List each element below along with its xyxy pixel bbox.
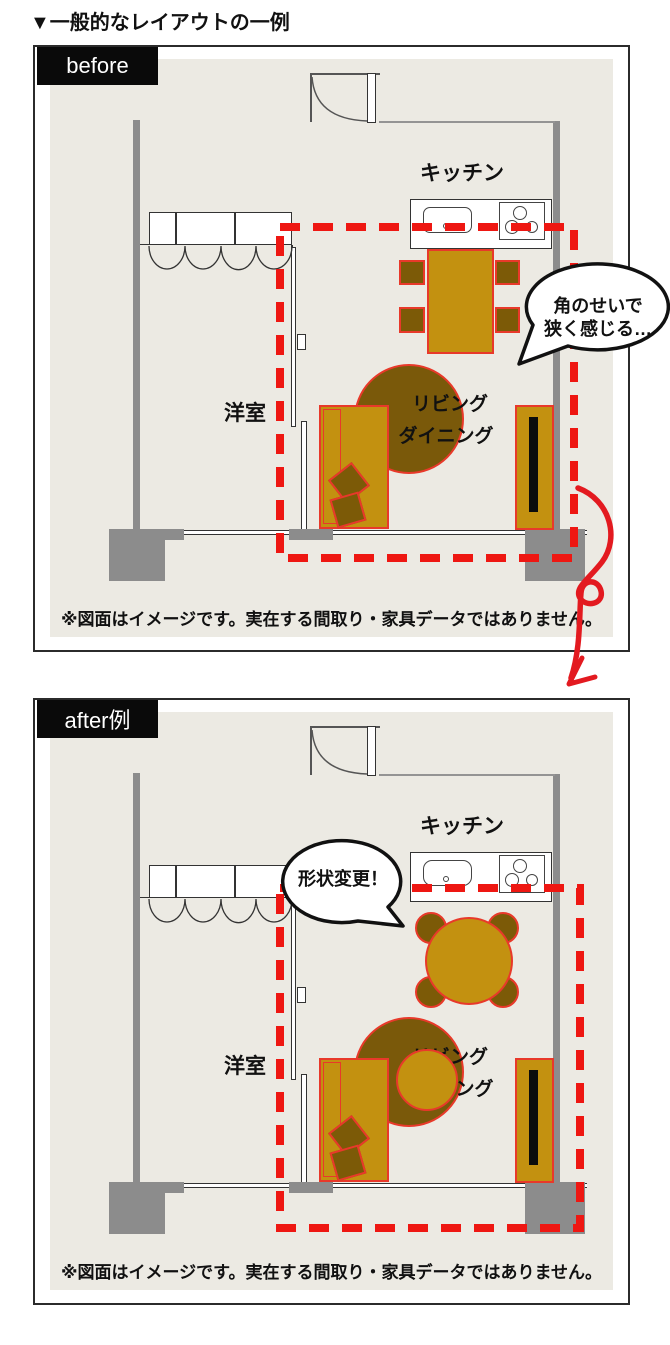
bubble-text: 形状変更！ bbox=[283, 868, 403, 891]
bubble-line-2: 狭く感じる… bbox=[533, 318, 663, 341]
disclaimer-text: ※図面はイメージです。実在する間取り・家具データではありません。 bbox=[50, 1258, 613, 1283]
arrow-curve bbox=[571, 488, 611, 678]
bubble-line-1: 角のせいで bbox=[533, 295, 663, 318]
page-title: ▼一般的なレイアウトの一例 bbox=[30, 6, 290, 35]
after-panel: キッチン リビング ダイニング 洋室 形状変更！ ※図面はイメージです。実在する… bbox=[33, 698, 630, 1305]
bubble-text: 角のせいで 狭く感じる… bbox=[533, 295, 663, 341]
red-arrow bbox=[540, 450, 670, 720]
after-label: after例 bbox=[37, 700, 158, 738]
page: { "title": "▼一般的なレイアウトの一例", "panels": { … bbox=[0, 0, 670, 1345]
speech-bubble bbox=[35, 700, 632, 1307]
before-label: before bbox=[37, 47, 158, 85]
disclaimer-text: ※図面はイメージです。実在する間取り・家具データではありません。 bbox=[50, 605, 613, 630]
